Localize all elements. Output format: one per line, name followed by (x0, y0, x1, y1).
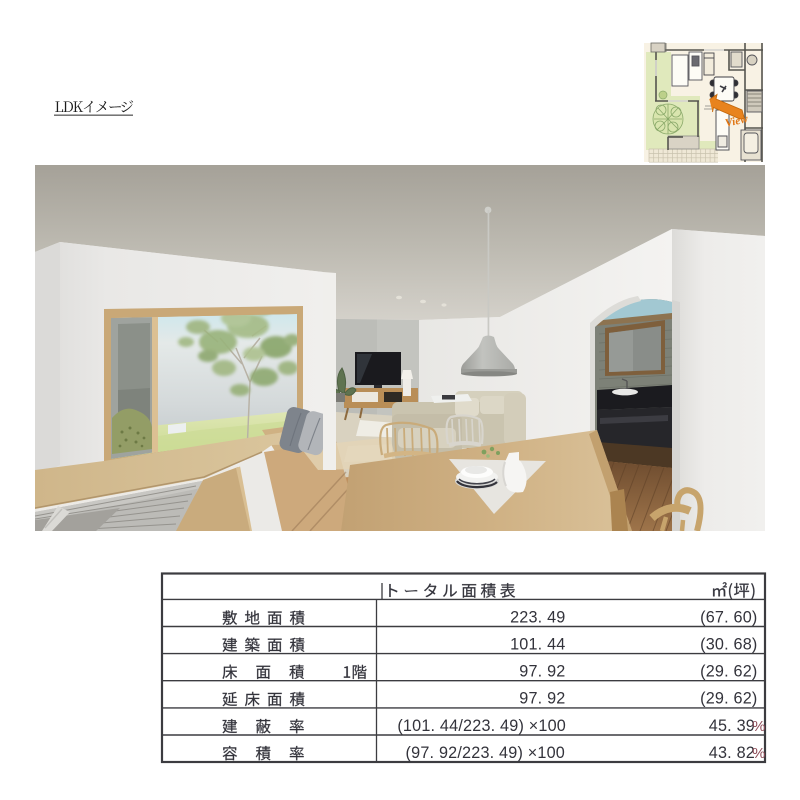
svg-text:(101. 44/223. 49) ×100: (101. 44/223. 49) ×100 (397, 717, 566, 735)
svg-text:%: % (752, 718, 765, 735)
svg-text:45. 39: 45. 39 (709, 717, 755, 735)
svg-text:(67. 60): (67. 60) (700, 608, 757, 626)
svg-text:223. 49: 223. 49 (510, 608, 565, 626)
svg-text:97. 92: 97. 92 (519, 663, 565, 681)
svg-text:(29. 62): (29. 62) (700, 690, 757, 708)
svg-text:101. 44: 101. 44 (510, 635, 565, 653)
svg-text:43. 82: 43. 82 (709, 744, 755, 762)
svg-text:%: % (752, 745, 765, 762)
svg-text:(30. 68): (30. 68) (700, 635, 757, 653)
svg-text:(29. 62): (29. 62) (700, 663, 757, 681)
svg-text:97. 92: 97. 92 (519, 690, 565, 708)
svg-text:(97. 92/223. 49) ×100: (97. 92/223. 49) ×100 (406, 744, 565, 762)
